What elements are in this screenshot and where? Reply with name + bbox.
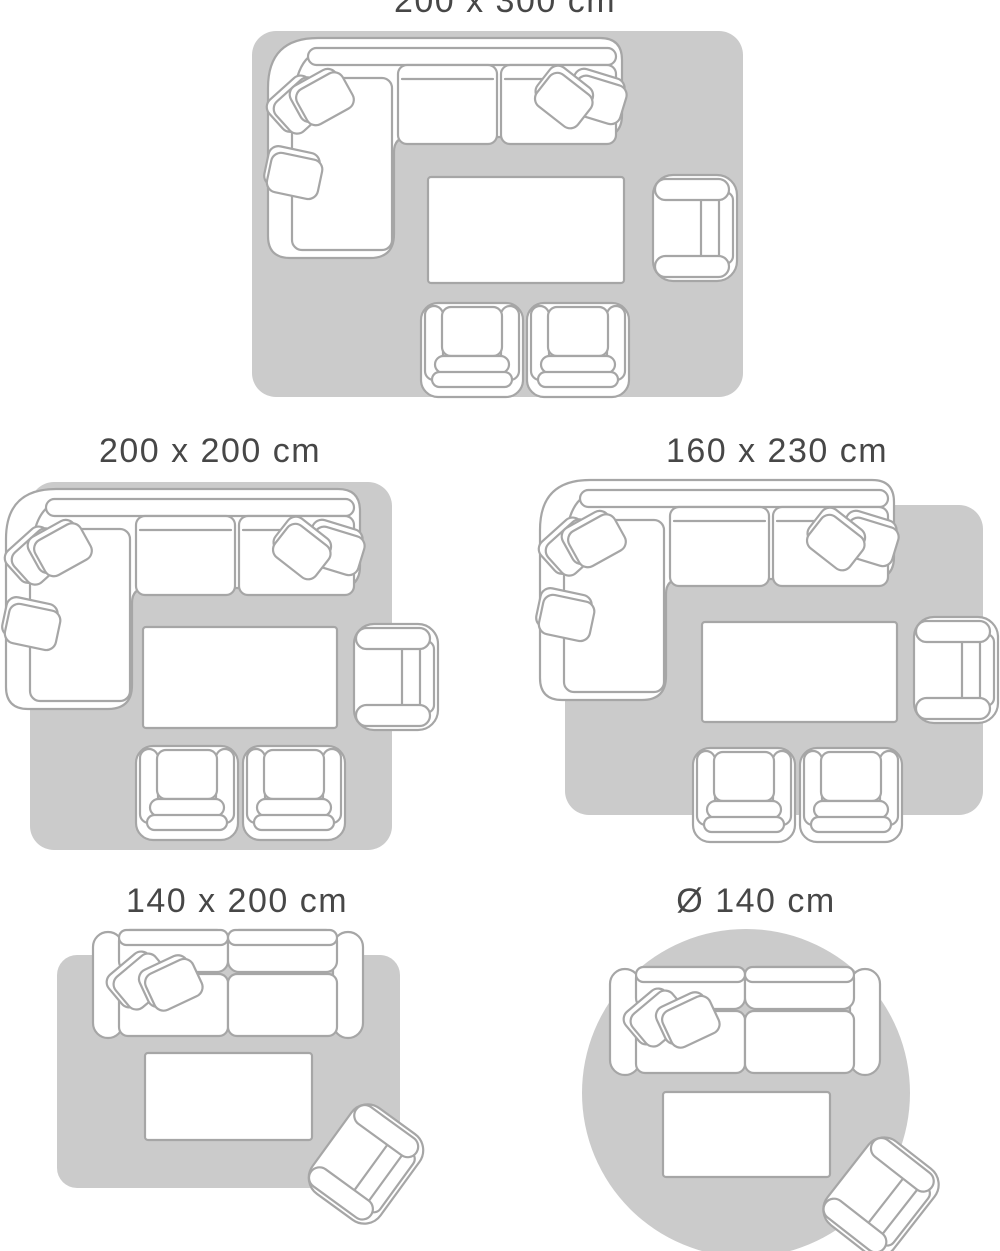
size-label-200x300: 200 x 300 cm: [394, 0, 616, 20]
coffee-table: [702, 622, 897, 722]
accent-chair-right: [527, 303, 629, 397]
layout-160x230: 160 x 230 cm: [533, 432, 998, 842]
accent-chair-left: [693, 748, 795, 842]
size-label-200x200: 200 x 200 cm: [99, 432, 321, 470]
coffee-table: [663, 1092, 830, 1177]
accent-chair-right: [243, 746, 345, 840]
accent-chair-right: [800, 748, 902, 842]
layout-200x200: 200 x 200 cm: [0, 432, 438, 850]
coffee-table: [428, 177, 624, 283]
armchair: [354, 624, 438, 730]
coffee-table: [145, 1053, 312, 1140]
loveseat-sofa: [610, 967, 880, 1075]
loveseat-sofa: [93, 930, 363, 1038]
accent-chair-left: [136, 746, 238, 840]
layout-200x300: 200 x 300 cm: [252, 0, 743, 397]
armchair: [914, 617, 998, 723]
coffee-table: [143, 627, 337, 728]
accent-chair-left: [421, 303, 523, 397]
rug-size-guide-diagram: 200 x 300 cm 200 x 200 cm 160 x 230 cm 1…: [0, 0, 1000, 1251]
size-label-round-140: Ø 140 cm: [676, 882, 835, 920]
armchair: [653, 175, 737, 281]
layout-140x200: 140 x 200 cm: [57, 882, 431, 1232]
size-label-140x200: 140 x 200 cm: [126, 882, 348, 920]
layout-round-140: Ø 140 cm: [582, 882, 947, 1251]
size-label-160x230: 160 x 230 cm: [666, 432, 888, 470]
